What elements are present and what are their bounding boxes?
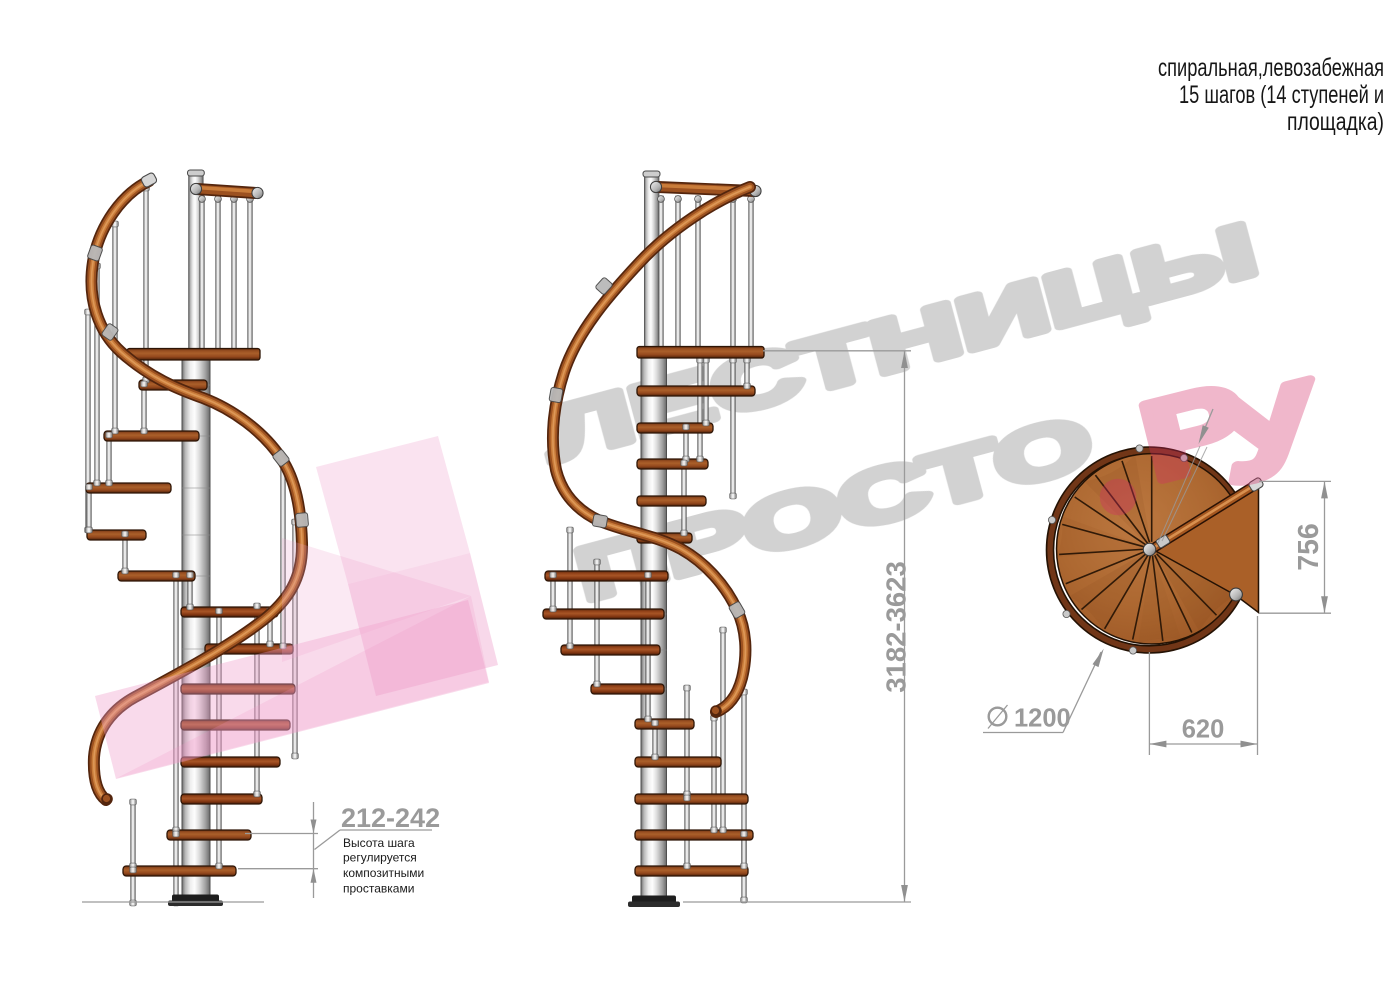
svg-text:1200: 1200 [1014,705,1071,733]
svg-text:15 шагов (14 ступеней и: 15 шагов (14 ступеней и [1179,81,1384,109]
svg-text:регулируется: регулируется [343,851,417,865]
svg-text:проставками: проставками [343,882,414,896]
svg-text:756: 756 [1293,523,1325,571]
svg-text:620: 620 [1182,716,1225,744]
svg-text:композитными: композитными [343,866,424,880]
svg-text:площадка): площадка) [1287,108,1384,136]
svg-text:3182-3623: 3182-3623 [880,561,911,693]
svg-text:спиральная,левозабежная: спиральная,левозабежная [1158,54,1384,82]
svg-text:212-242: 212-242 [341,803,440,833]
svg-text:Высота шага: Высота шага [343,836,415,850]
